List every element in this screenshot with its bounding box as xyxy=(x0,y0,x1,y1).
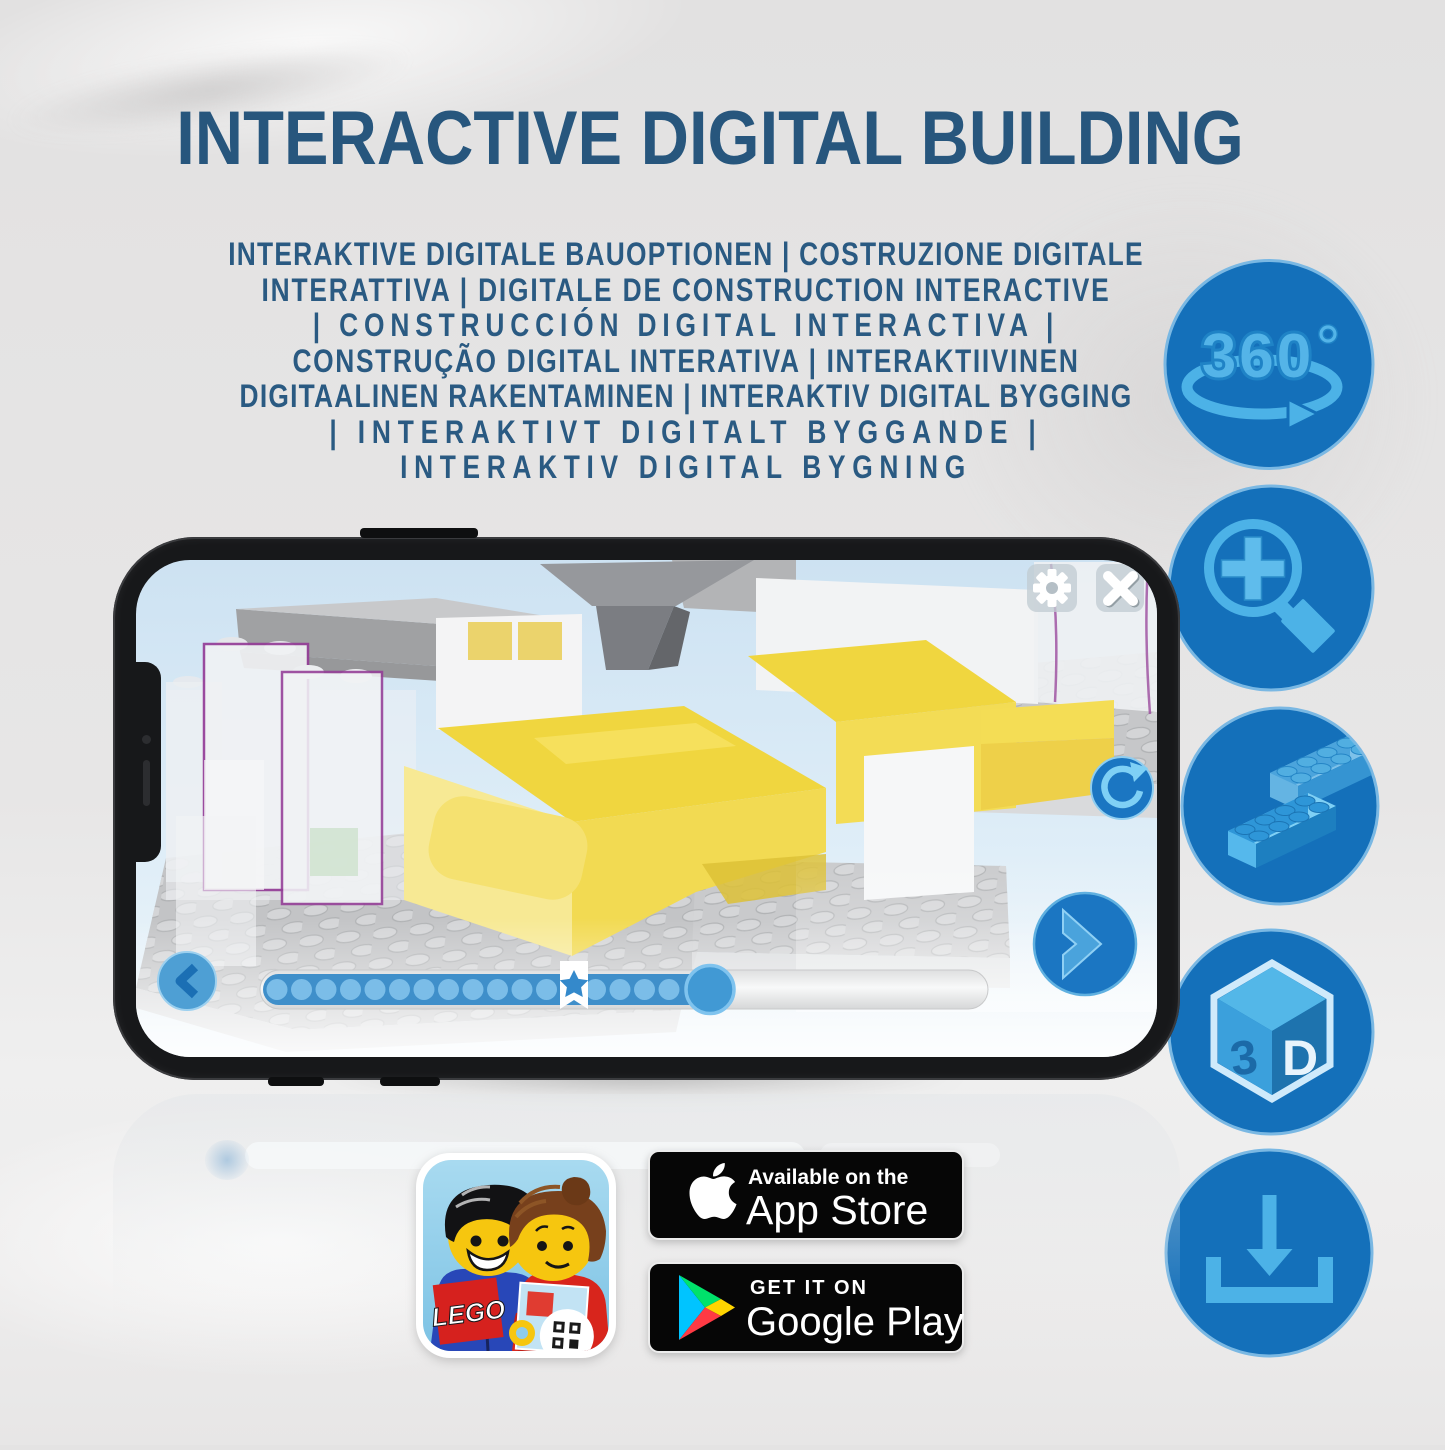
svg-text:Available on the: Available on the xyxy=(748,1166,908,1189)
svg-text:Google Play: Google Play xyxy=(746,1300,964,1344)
svg-text:360: 360 xyxy=(1202,322,1314,391)
svg-text:App Store: App Store xyxy=(746,1187,928,1233)
svg-text:GET IT ON: GET IT ON xyxy=(750,1277,868,1299)
svg-text:D: D xyxy=(1282,1030,1318,1086)
